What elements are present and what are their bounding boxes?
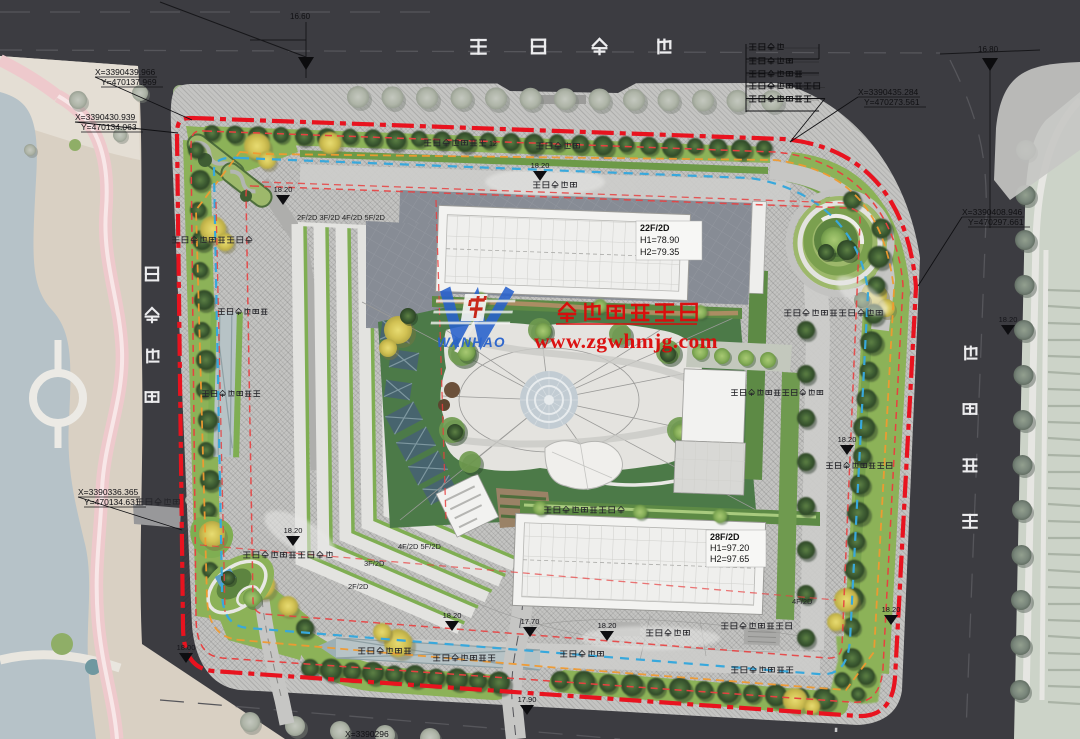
svg-text:X=3390439.966: X=3390439.966 xyxy=(95,67,156,77)
svg-text:X=3390430.939: X=3390430.939 xyxy=(75,112,136,122)
svg-text:16.60: 16.60 xyxy=(290,12,311,21)
svg-text:18.00: 18.00 xyxy=(177,643,196,652)
svg-text:X=3390408.946: X=3390408.946 xyxy=(962,207,1023,217)
svg-text:22F/2D: 22F/2D xyxy=(640,223,670,233)
svg-text:Y=470137.969: Y=470137.969 xyxy=(101,77,157,87)
svg-text:16.80: 16.80 xyxy=(978,45,999,54)
svg-text:18.20: 18.20 xyxy=(882,605,901,614)
svg-text:28F/2D: 28F/2D xyxy=(710,532,740,542)
svg-text:Y=470297.661: Y=470297.661 xyxy=(968,217,1024,227)
svg-text:18.20: 18.20 xyxy=(598,621,617,630)
svg-text:H2=97.65: H2=97.65 xyxy=(710,554,749,564)
svg-text:2F/2D: 2F/2D xyxy=(348,582,369,591)
svg-text:H1=78.90: H1=78.90 xyxy=(640,235,679,245)
svg-text:X=3390435.284: X=3390435.284 xyxy=(858,87,919,97)
svg-text:12: 12 xyxy=(489,141,497,148)
svg-text:18.20: 18.20 xyxy=(999,315,1018,324)
svg-text:18.20: 18.20 xyxy=(838,435,857,444)
svg-text:18.20: 18.20 xyxy=(443,611,462,620)
svg-text:18.20: 18.20 xyxy=(284,526,303,535)
svg-text:2F/2D 3F/2D 4F/2D 5F/2D: 2F/2D 3F/2D 4F/2D 5F/2D xyxy=(297,213,386,222)
svg-text:WANHAO: WANHAO xyxy=(437,335,506,350)
svg-text:4F/2D: 4F/2D xyxy=(792,597,813,606)
svg-text:H2=79.35: H2=79.35 xyxy=(640,247,679,257)
svg-text:www.zgwhmjg.com: www.zgwhmjg.com xyxy=(534,329,718,353)
svg-text:3F/2D: 3F/2D xyxy=(364,559,385,568)
svg-text:X=3390296: X=3390296 xyxy=(345,729,389,739)
svg-text:18.20: 18.20 xyxy=(531,161,550,170)
svg-text:H1=97.20: H1=97.20 xyxy=(710,543,749,553)
svg-text:17.90: 17.90 xyxy=(518,695,537,704)
svg-text:4F/2D 5F/2D: 4F/2D 5F/2D xyxy=(398,542,442,551)
svg-text:17.70: 17.70 xyxy=(521,617,540,626)
svg-text:18.20: 18.20 xyxy=(274,185,293,194)
svg-text:Y=470273.561: Y=470273.561 xyxy=(864,97,920,107)
svg-text:X=3390336.365: X=3390336.365 xyxy=(78,487,139,497)
